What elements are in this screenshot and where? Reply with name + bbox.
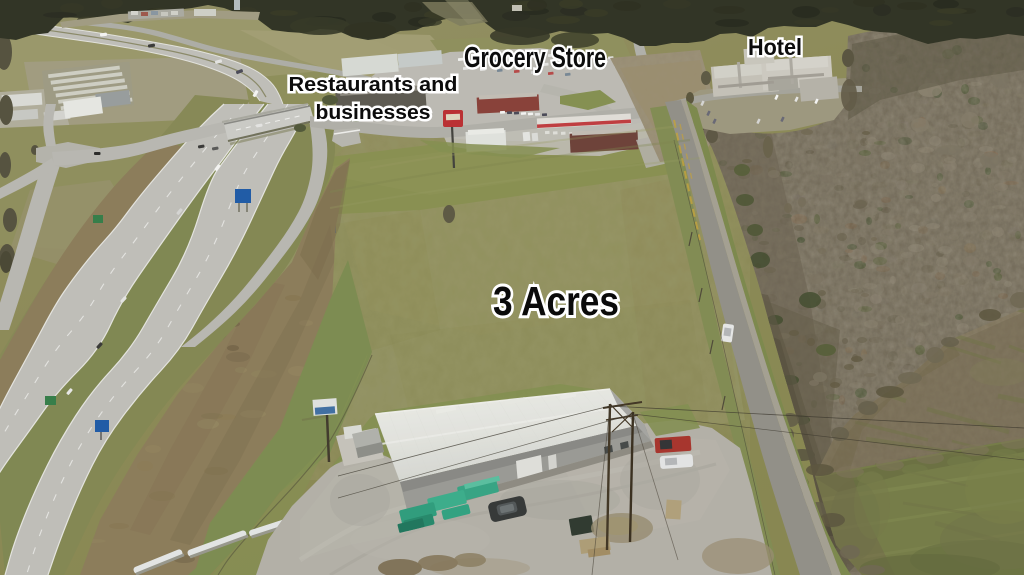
svg-text:Restaurants and: Restaurants and	[289, 73, 458, 96]
svg-text:3 Acres: 3 Acres	[493, 278, 619, 324]
svg-text:businesses: businesses	[316, 101, 431, 124]
svg-text:Grocery Store: Grocery Store	[464, 42, 606, 74]
svg-text:Hotel: Hotel	[748, 34, 802, 60]
